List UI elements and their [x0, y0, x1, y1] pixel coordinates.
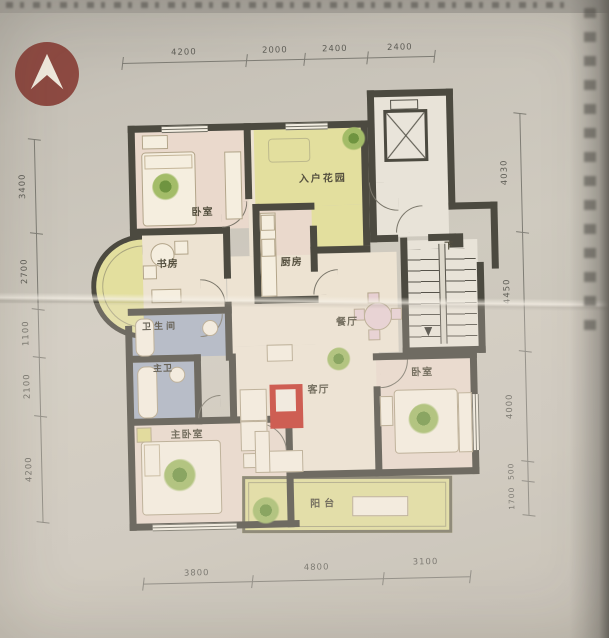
dresser	[142, 135, 168, 150]
dim-label: 2400	[305, 42, 365, 55]
room-label-kitchen: 厨房	[280, 253, 302, 268]
window	[286, 122, 328, 130]
room-label-bedroom-tl: 卧室	[191, 203, 213, 218]
paper-tone-shift	[0, 303, 609, 638]
bed-pillow	[144, 154, 192, 169]
wall	[446, 88, 456, 209]
adjacent-page-text-blur	[584, 8, 596, 338]
room-label-entry-garden: 入户花园	[299, 169, 347, 185]
stairs-down-label: 下	[444, 238, 454, 251]
wall	[252, 203, 314, 211]
wall	[310, 245, 370, 253]
floor-plan-photo: 4200 2000 2400 2400 3400 2700 1100 2100 …	[0, 0, 609, 638]
dim-label: 2000	[245, 44, 305, 57]
dim-label: 3400	[16, 156, 29, 216]
photo-top-edge	[0, 0, 609, 13]
room-label-study: 书房	[156, 255, 178, 270]
wardrobe	[224, 151, 243, 219]
wall	[490, 201, 499, 268]
dim-label: 4200	[154, 46, 214, 59]
stove	[261, 215, 275, 231]
wall	[370, 235, 398, 243]
elevator-icon	[383, 109, 428, 162]
elevator-counterweight	[390, 99, 418, 110]
window	[162, 125, 208, 133]
wall	[223, 227, 231, 279]
study-chair	[143, 265, 157, 279]
dim-label: 2400	[370, 41, 430, 54]
kitchen-sink	[261, 239, 275, 257]
room-entry-garden-2	[309, 204, 366, 249]
study-chair	[174, 241, 188, 255]
dim-label: 4030	[498, 142, 511, 202]
garden-planter	[268, 138, 311, 163]
